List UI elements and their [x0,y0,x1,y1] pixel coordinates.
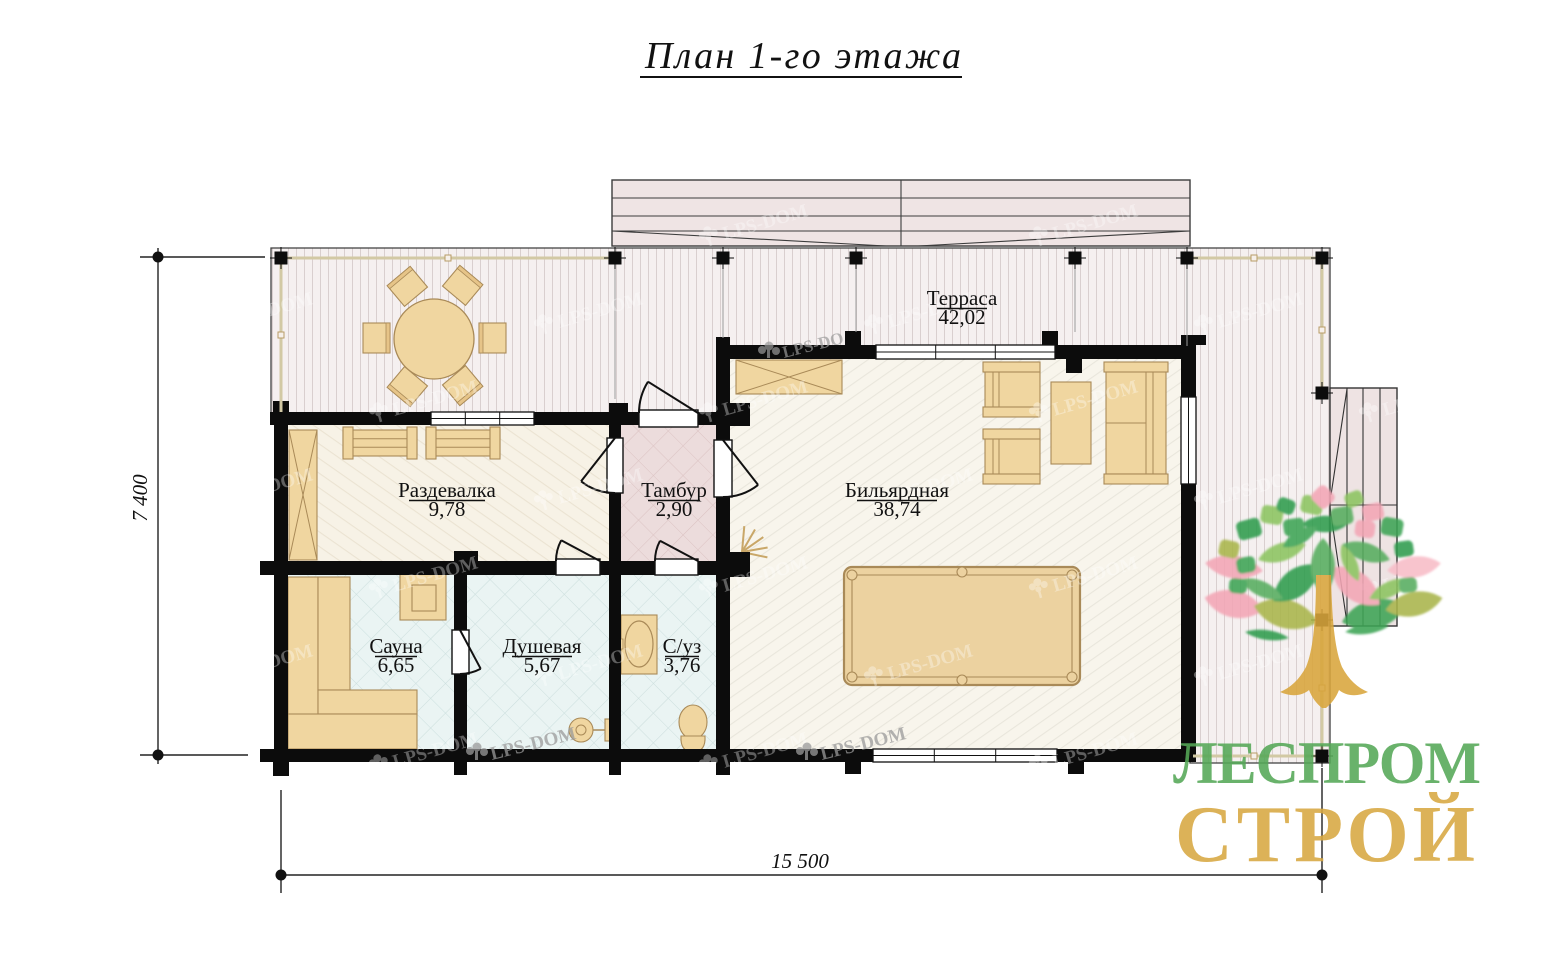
svg-text:СТРОЙ: СТРОЙ [1175,791,1475,879]
svg-text:38,74: 38,74 [873,497,921,521]
svg-text:3,76: 3,76 [664,653,701,677]
svg-text:6,65: 6,65 [378,653,415,677]
svg-text:2,90: 2,90 [656,497,693,521]
svg-text:7 400: 7 400 [128,474,152,522]
svg-text:5,67: 5,67 [524,653,561,677]
svg-text:42,02: 42,02 [938,305,985,329]
svg-text:9,78: 9,78 [429,497,466,521]
svg-text:План 1-го этажа: План 1-го этажа [644,35,961,77]
svg-text:ЛЕСПРОМ: ЛЕСПРОМ [1173,730,1481,796]
svg-text:15 500: 15 500 [771,849,829,873]
